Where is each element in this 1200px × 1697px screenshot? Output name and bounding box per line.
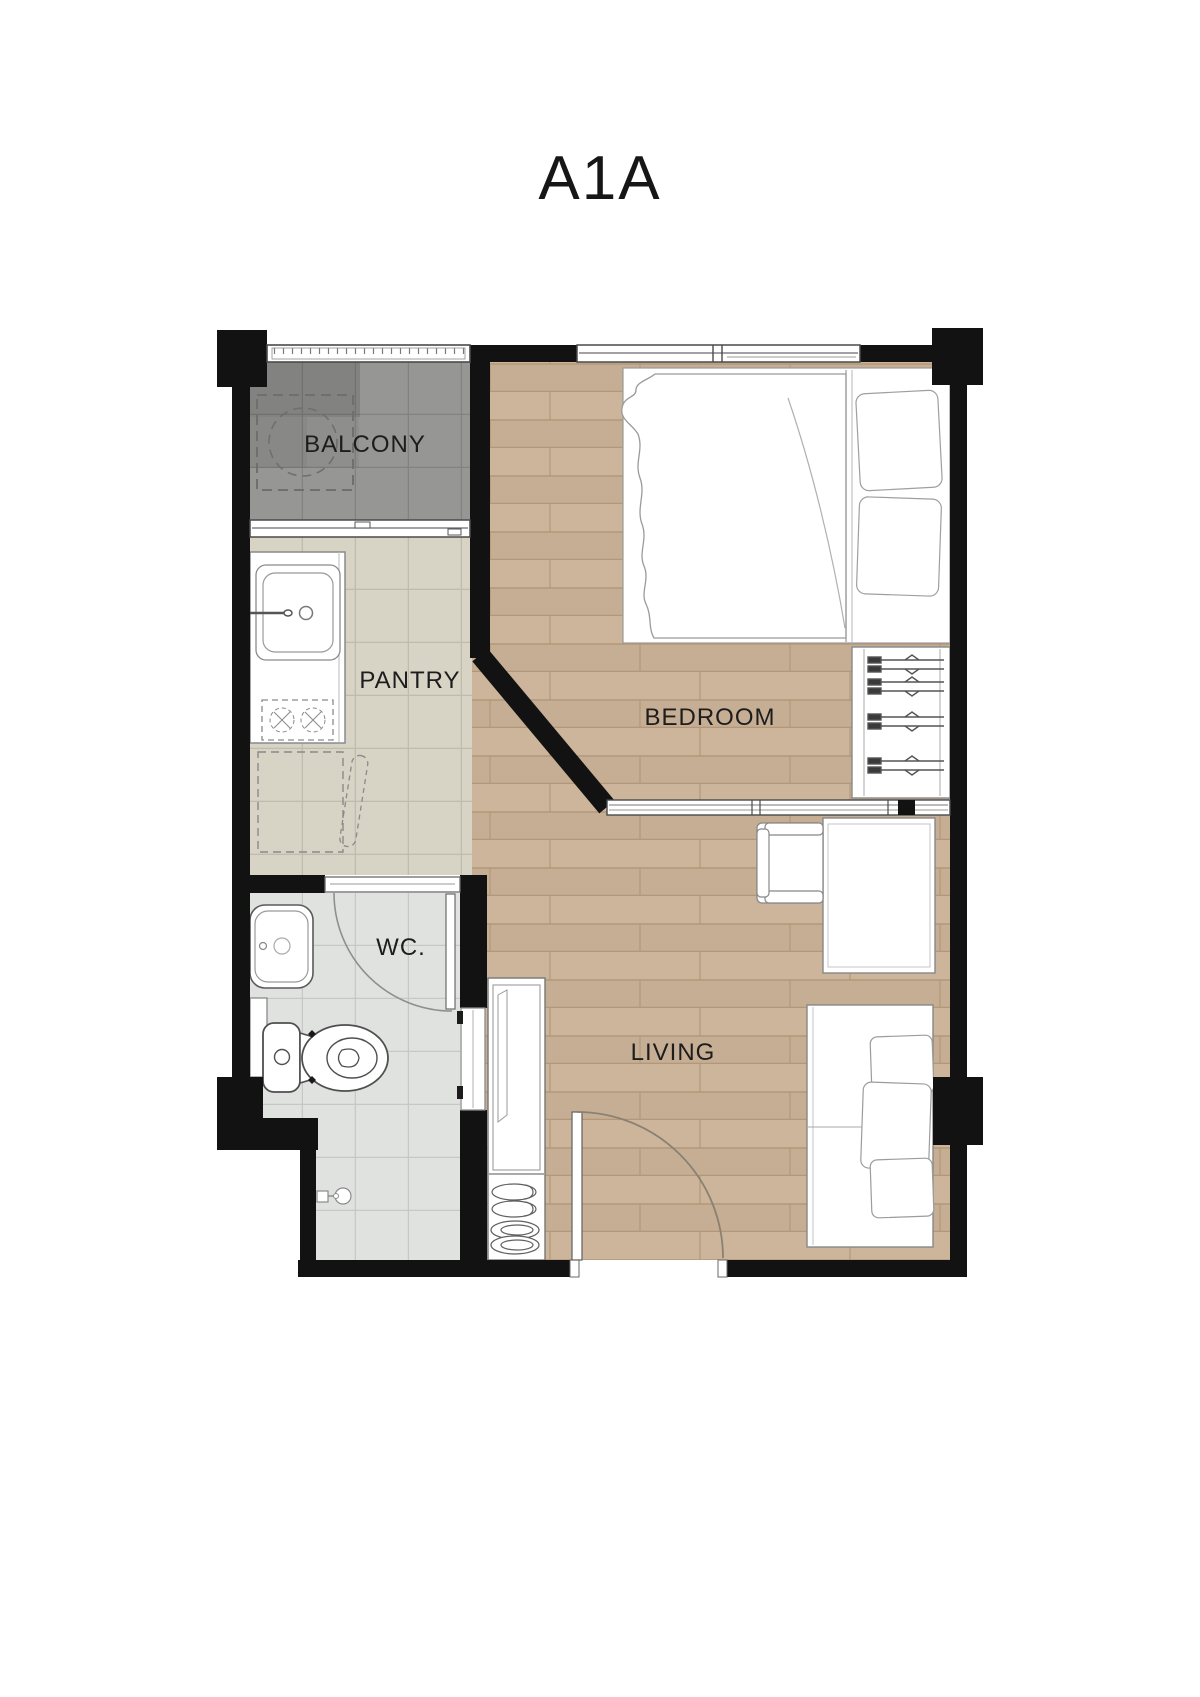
pillar-mid-right bbox=[933, 1077, 983, 1145]
balcony-railing bbox=[267, 345, 470, 362]
room-label-living: LIVING bbox=[631, 1039, 716, 1066]
bedroom-living-partition bbox=[607, 800, 950, 815]
washbasin bbox=[250, 905, 313, 988]
door-jamb-left bbox=[570, 1260, 579, 1277]
pillow bbox=[856, 390, 943, 491]
shower-door-handle bbox=[457, 1011, 463, 1024]
plan-title: A1A bbox=[538, 144, 661, 213]
pillow bbox=[856, 497, 941, 597]
balcony-floor-shade2 bbox=[250, 417, 307, 468]
room-label-pantry: PANTRY bbox=[359, 667, 460, 694]
wall-bottom-left bbox=[298, 1260, 570, 1277]
wall-top-right bbox=[860, 345, 932, 362]
bed bbox=[622, 368, 950, 643]
wall-lower-left bbox=[300, 1150, 316, 1277]
floor-plan-page: A1A BALCONY PANTRY BEDROOM WC. LIVING bbox=[0, 0, 1200, 1697]
room-label-balcony: BALCONY bbox=[304, 431, 426, 458]
wall-pantry-bedroom bbox=[470, 362, 490, 658]
partition-wall-block bbox=[898, 800, 915, 815]
wall-bottom-right bbox=[727, 1260, 967, 1277]
wardrobe bbox=[852, 647, 950, 798]
wc-door-leaf bbox=[446, 894, 455, 1009]
balcony-pantry-window bbox=[250, 520, 470, 537]
toilet bbox=[263, 1023, 388, 1092]
sofa bbox=[807, 1005, 934, 1247]
wall-step bbox=[250, 1118, 318, 1150]
wall-left bbox=[232, 345, 250, 1090]
wall-pantry-wc bbox=[232, 875, 325, 893]
wall-top-center bbox=[470, 345, 577, 362]
desk bbox=[823, 818, 935, 973]
kitchen-sink bbox=[250, 565, 340, 660]
shower-door bbox=[457, 1008, 485, 1110]
chair bbox=[757, 823, 823, 903]
pillar-top-right bbox=[932, 328, 983, 385]
bedroom-windows bbox=[577, 345, 860, 362]
entrance-door-leaf bbox=[572, 1112, 582, 1260]
shoe-cabinet bbox=[488, 978, 545, 1260]
sofa-cushion bbox=[861, 1082, 932, 1170]
room-label-bedroom: BEDROOM bbox=[644, 704, 775, 731]
sofa-cushion bbox=[870, 1158, 934, 1218]
wall-wc-living-lower bbox=[460, 1110, 487, 1260]
wall-wc-living-upper bbox=[460, 875, 487, 1008]
floor-plan-canvas: A1A BALCONY PANTRY BEDROOM WC. LIVING bbox=[0, 0, 1200, 1697]
shower-door-handle2 bbox=[457, 1086, 463, 1099]
door-jamb-right bbox=[718, 1260, 727, 1277]
bed-blanket bbox=[622, 374, 846, 638]
cabinet-door-panel bbox=[498, 990, 507, 1122]
room-label-wc: WC. bbox=[376, 934, 426, 961]
